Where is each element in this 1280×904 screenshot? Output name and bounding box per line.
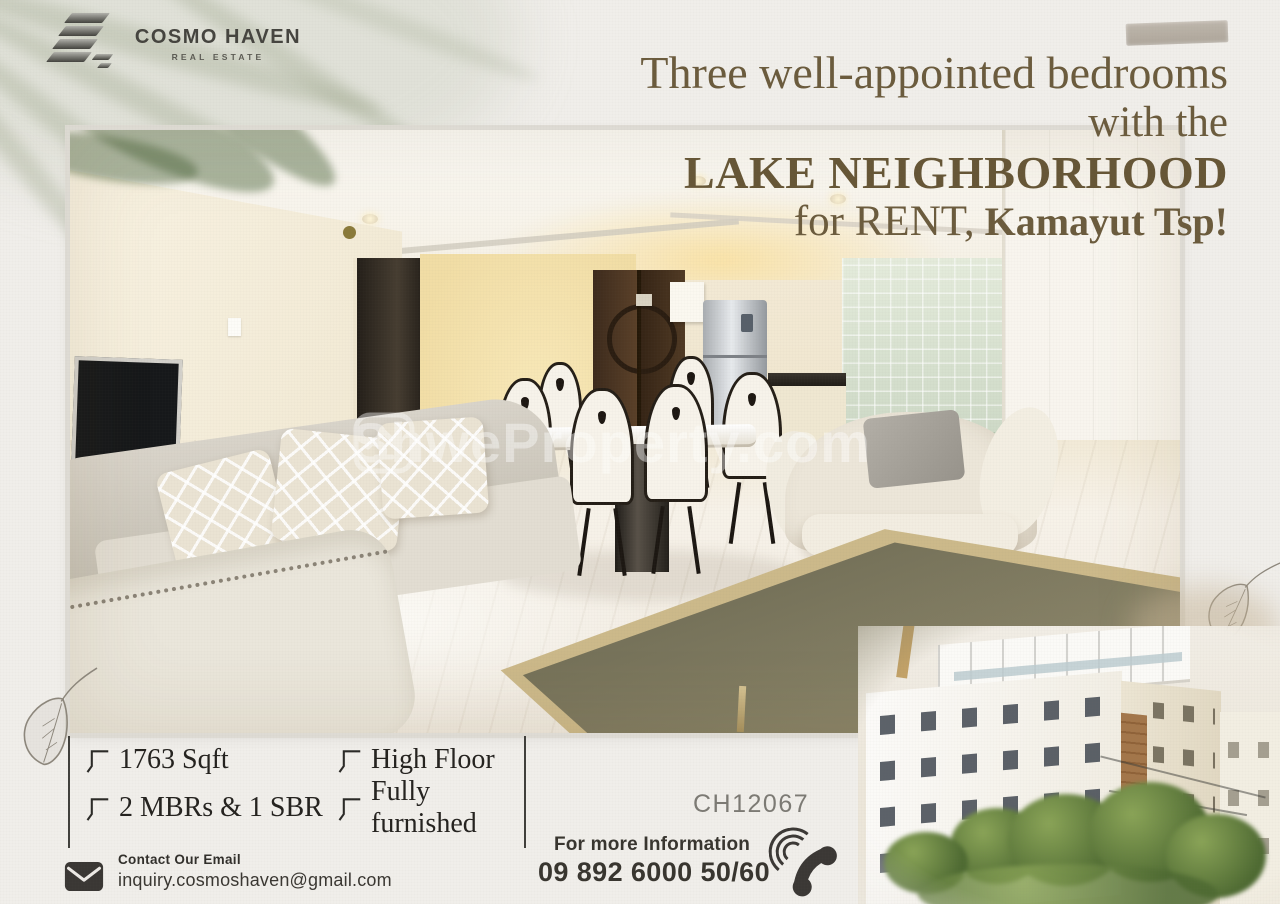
real-estate-flyer: COSMO HAVEN REAL ESTATE Three well-appoi… <box>0 0 1280 904</box>
feature-label: High Floor <box>371 744 495 776</box>
headline-line-1: Three well-appointed bedrooms <box>640 48 1228 99</box>
corner-check-icon <box>84 745 110 775</box>
feature-item: 2 MBRs & 1 SBR <box>84 776 336 840</box>
features-box: 1763 Sqft High Floor 2 MBRs & 1 SBR Full… <box>68 736 526 848</box>
corner-check-icon <box>336 793 362 823</box>
building-photo <box>858 626 1280 904</box>
corner-check-icon <box>84 793 110 823</box>
listing-code: CH12067 <box>693 790 809 819</box>
brand-tagline: REAL ESTATE <box>130 52 306 62</box>
home-icon <box>352 411 416 475</box>
phone-label: For more Information <box>538 834 766 856</box>
headline-line-4: for RENT,Kamayut Tsp! <box>640 198 1228 246</box>
building-stack-icon <box>46 12 118 80</box>
brand-name: COSMO HAVEN <box>130 26 306 49</box>
watermark-text: ShweProperty.com <box>352 410 871 475</box>
feature-item: Fully furnished <box>336 776 524 840</box>
brand-logo: COSMO HAVEN REAL ESTATE <box>46 12 306 80</box>
phone-contact: For more Information 09 892 6000 50/60 <box>538 834 766 888</box>
corner-check-icon <box>336 745 362 775</box>
headline-line-2: with the <box>640 99 1228 147</box>
email-label: Contact Our Email <box>118 852 392 867</box>
email-address: inquiry.cosmoshaven@gmail.com <box>118 870 392 891</box>
feature-label: Fully furnished <box>371 776 524 840</box>
headline: Three well-appointed bedrooms with the L… <box>640 48 1228 246</box>
feature-label: 2 MBRs & 1 SBR <box>119 792 323 824</box>
headline-line-3: LAKE NEIGHBORHOOD <box>640 147 1228 199</box>
feature-label: 1763 Sqft <box>119 744 229 776</box>
feature-item: High Floor <box>336 744 524 776</box>
watermark: ShweProperty.com <box>352 410 871 475</box>
tape-decoration <box>1126 20 1229 46</box>
feature-item: 1763 Sqft <box>84 744 336 776</box>
email-contact: Contact Our Email inquiry.cosmoshaven@gm… <box>64 852 392 892</box>
phone-number: 09 892 6000 50/60 <box>538 857 766 888</box>
phone-handset-icon <box>764 820 852 904</box>
envelope-icon <box>64 861 104 892</box>
